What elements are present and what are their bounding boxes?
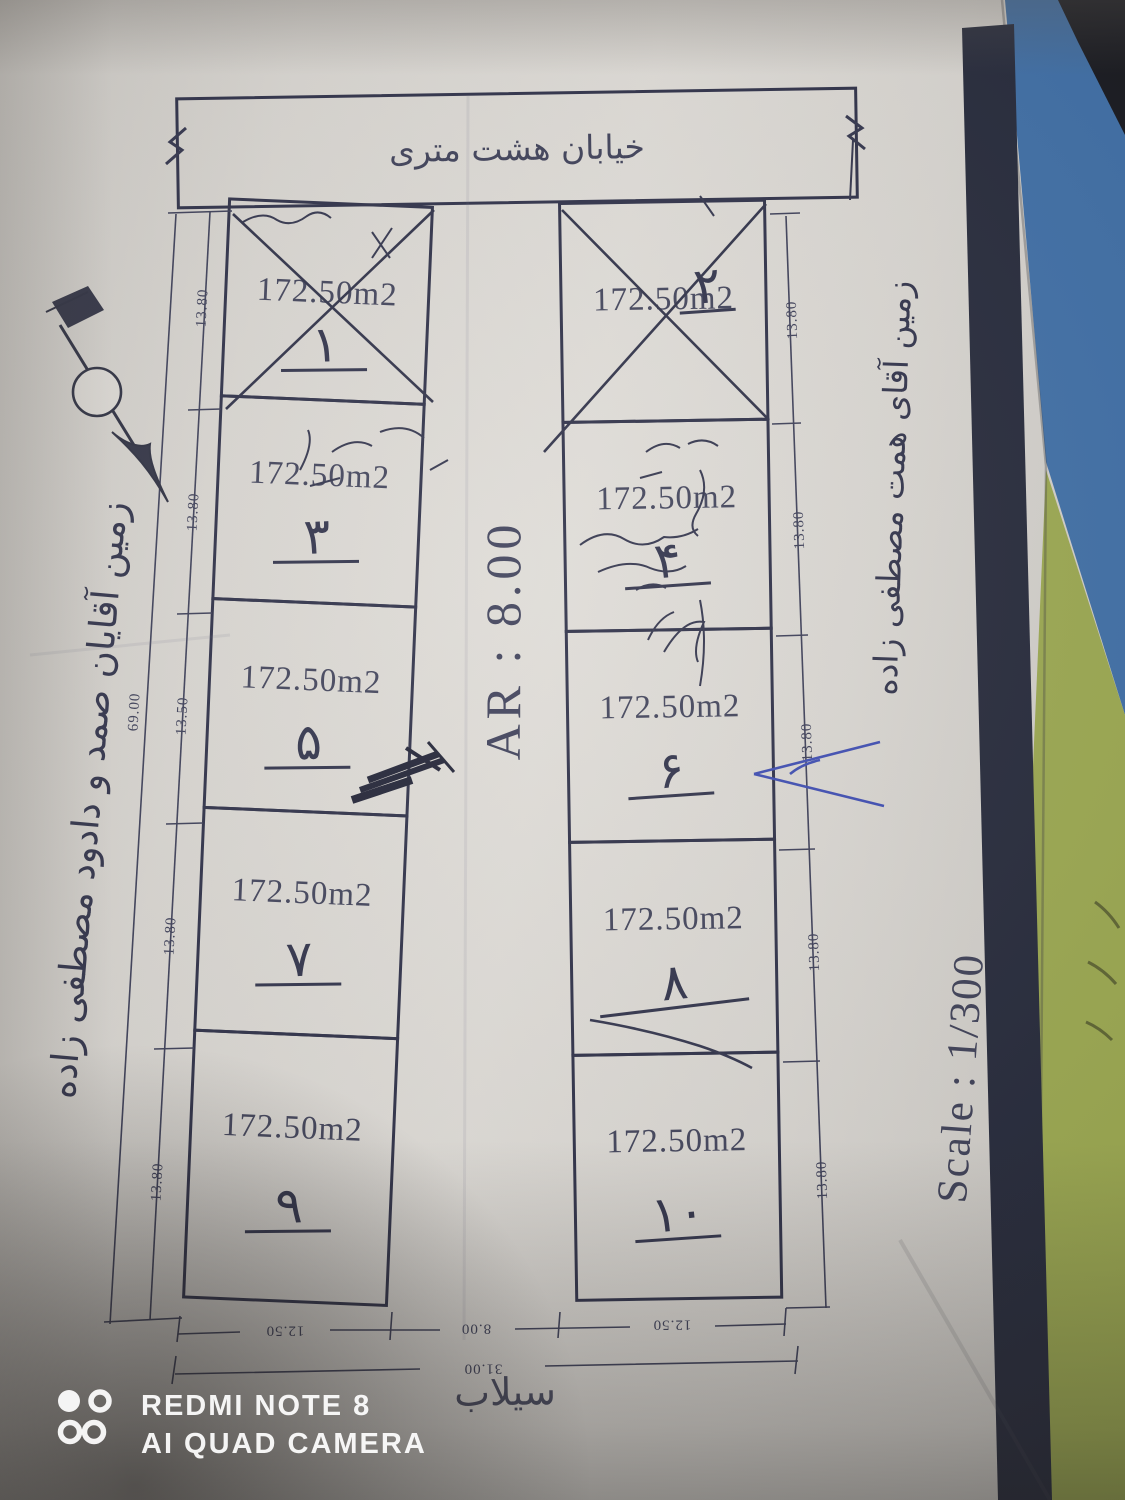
blue-pen-arrow-icon <box>754 742 884 806</box>
paper-creases <box>30 95 1050 1500</box>
plot-cross-outs <box>226 204 769 452</box>
camera-watermark: REDMI NOTE 8 AI QUAD CAMERA <box>55 1388 427 1463</box>
watermark-line2: AI QUAD CAMERA <box>141 1426 427 1464</box>
photo-of-subdivision-plan: خیابان هشت متری 172.50m2 ۱ 172.50m2 ۳ 17… <box>0 0 1125 1500</box>
street-break-marks <box>166 116 865 200</box>
watermark-line1: REDMI NOTE 8 <box>141 1388 427 1426</box>
north-arrow-icon <box>46 286 168 502</box>
camera-watermark-logo-icon <box>55 1388 121 1448</box>
plan-linework-overlay <box>0 0 1125 1500</box>
pen-scribble-blob <box>352 742 454 800</box>
